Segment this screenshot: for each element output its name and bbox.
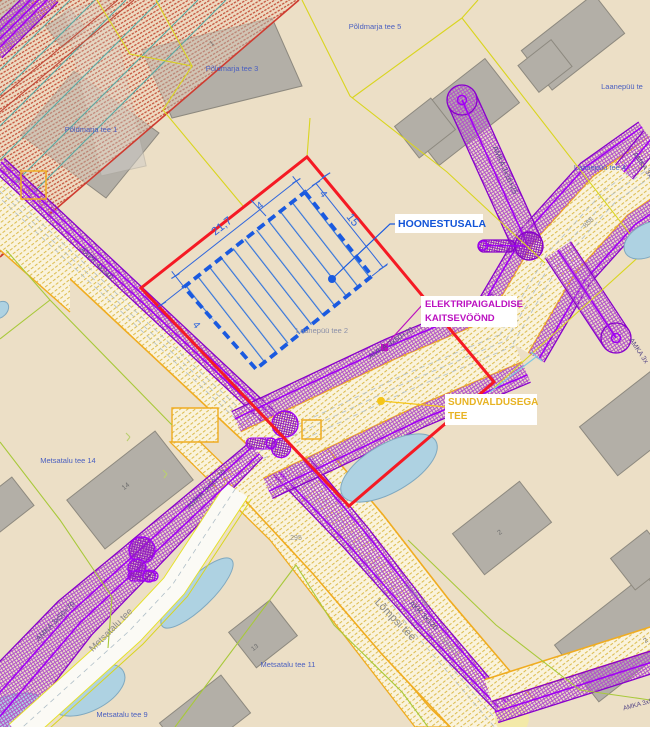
svg-text:Metsatalu tee 11: Metsatalu tee 11: [261, 660, 316, 669]
svg-text:295: 295: [290, 535, 302, 542]
svg-text:Laanepüü tee 4: Laanepüü tee 4: [574, 163, 626, 172]
svg-text:Põldmarja tee 1: Põldmarja tee 1: [65, 125, 118, 134]
svg-text:TEE: TEE: [448, 411, 468, 422]
svg-text:SUNDVALDUSEGA: SUNDVALDUSEGA: [448, 397, 538, 408]
svg-text:Laanepüü te: Laanepüü te: [601, 82, 643, 91]
svg-text:Metsatalu tee 9: Metsatalu tee 9: [96, 710, 147, 719]
svg-text:Laanepüü tee 2: Laanepüü tee 2: [296, 326, 348, 335]
svg-text:KAITSEVÖÖND: KAITSEVÖÖND: [425, 313, 495, 324]
svg-text:Metsatalu tee 14: Metsatalu tee 14: [40, 456, 95, 465]
svg-text:Põldmarja tee 5: Põldmarja tee 5: [349, 22, 402, 31]
svg-text:HOONESTUSALA: HOONESTUSALA: [398, 218, 487, 230]
svg-text:ELEKTRIPAIGALDISE: ELEKTRIPAIGALDISE: [425, 299, 523, 310]
svg-text:Põldmarja tee 3: Põldmarja tee 3: [206, 64, 259, 73]
